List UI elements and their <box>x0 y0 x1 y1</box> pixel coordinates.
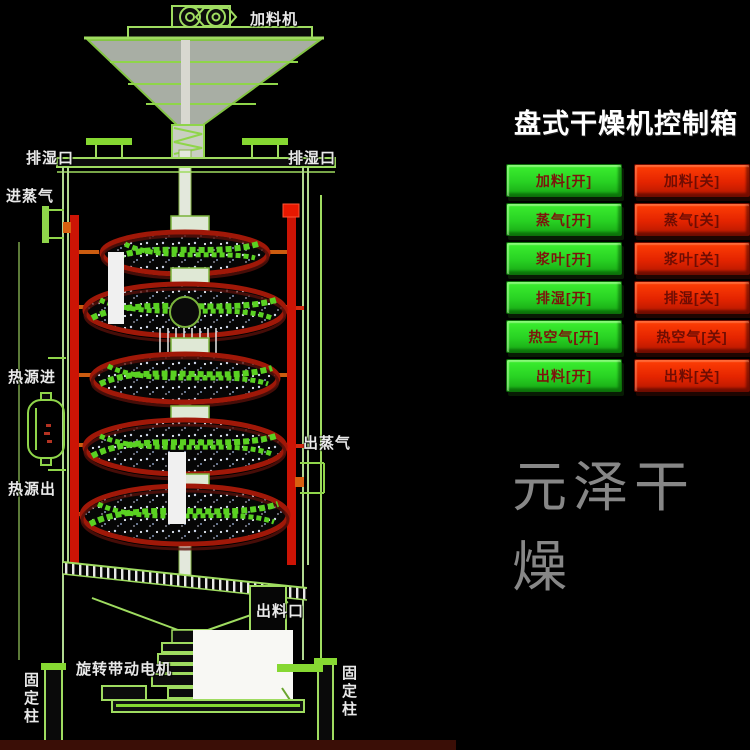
base-plate <box>112 700 304 712</box>
watermark: 元泽干燥 <box>512 442 750 602</box>
steam-on-button[interactable]: 蒸气[开] <box>506 203 622 236</box>
steam-inlet-bracket <box>43 207 64 242</box>
label-steam-out: 出蒸气 <box>303 432 351 453</box>
label-discharge: 出料口 <box>256 600 304 621</box>
humidity-on-button[interactable]: 排湿[开] <box>506 281 622 314</box>
baseline-strip <box>0 740 456 750</box>
hotair-on-button[interactable]: 热空气[开] <box>506 320 622 353</box>
hotair-off-button[interactable]: 热空气[关] <box>634 320 750 353</box>
panel-title: 盘式干燥机控制箱 <box>504 102 748 141</box>
label-heat-in: 热源进 <box>8 366 56 387</box>
label-column-left: 固定柱 <box>20 672 41 742</box>
label-feeder: 加料机 <box>250 8 298 29</box>
label-vent-left: 排湿口 <box>26 147 74 168</box>
humidity-off-button[interactable]: 排湿[关] <box>634 281 750 314</box>
output-on-button[interactable]: 出料[开] <box>506 359 622 392</box>
scraper-plate-lower <box>168 452 186 524</box>
label-steam-in: 进蒸气 <box>6 185 54 206</box>
control-button-grid: 加料[开] 加料[关] 蒸气[开] 蒸气[关] 浆叶[开] 浆叶[关] 排湿[开… <box>506 164 750 392</box>
steam-outlet-bracket <box>295 463 324 493</box>
scraper-plate-upper <box>108 252 124 324</box>
output-off-button[interactable]: 出料[关] <box>634 359 750 392</box>
screenshot-root: 加料机 排湿口 排湿口 进蒸气 热源进 热源出 出蒸气 出料口 旋转带动电机 固… <box>0 0 750 750</box>
label-drive-motor: 旋转带动电机 <box>76 658 172 679</box>
paddle-on-button[interactable]: 浆叶[开] <box>506 242 622 275</box>
label-heat-out: 热源出 <box>8 478 56 499</box>
dryer-schematic <box>0 0 460 750</box>
feeder-motor <box>172 6 236 28</box>
steam-off-button[interactable]: 蒸气[关] <box>634 203 750 236</box>
label-vent-right: 排湿口 <box>288 147 336 168</box>
feed-on-button[interactable]: 加料[开] <box>506 164 622 197</box>
label-column-right: 固定柱 <box>338 665 359 735</box>
paddle-off-button[interactable]: 浆叶[关] <box>634 242 750 275</box>
feed-off-button[interactable]: 加料[关] <box>634 164 750 197</box>
